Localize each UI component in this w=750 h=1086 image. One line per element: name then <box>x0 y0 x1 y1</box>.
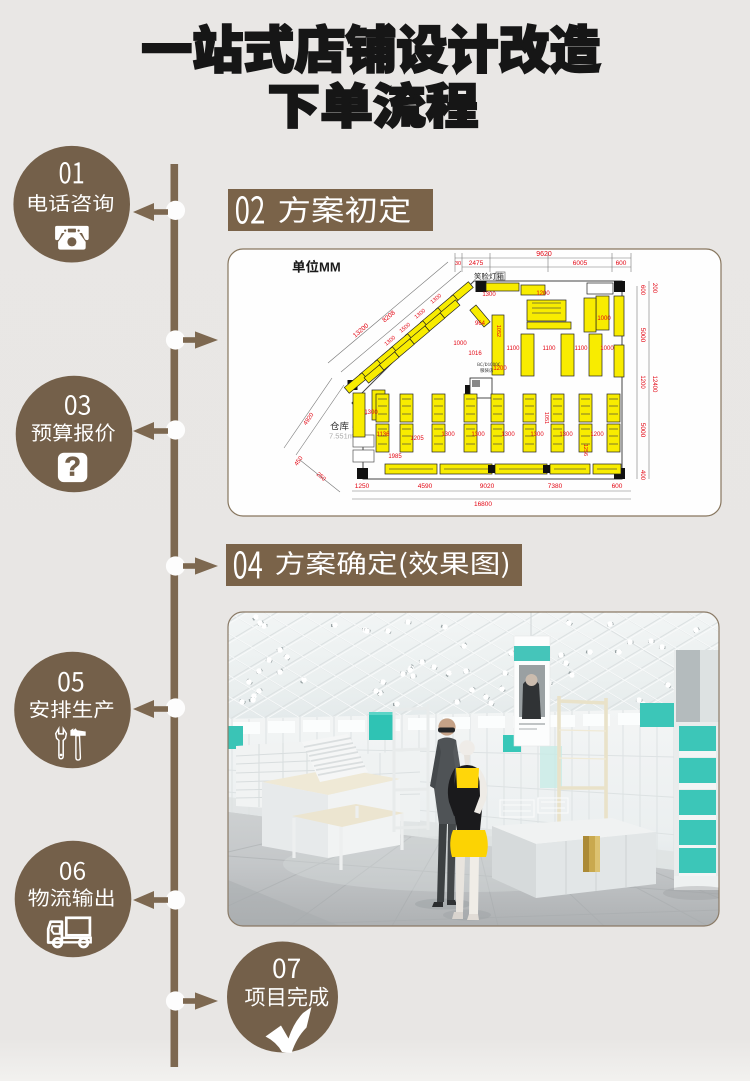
svg-text:1136: 1136 <box>377 432 391 438</box>
svg-text:200: 200 <box>651 283 657 294</box>
svg-text:5000: 5000 <box>639 423 646 438</box>
svg-text:1100: 1100 <box>543 346 557 352</box>
svg-text:7380: 7380 <box>548 483 563 490</box>
svg-text:1200: 1200 <box>590 432 604 438</box>
svg-text:1016: 1016 <box>468 351 482 357</box>
svg-text:1051: 1051 <box>543 412 549 424</box>
svg-text:1300: 1300 <box>559 432 573 438</box>
svg-text:400: 400 <box>639 470 645 481</box>
svg-text:6005: 6005 <box>573 260 588 267</box>
svg-text:1100: 1100 <box>575 346 589 352</box>
svg-text:4590: 4590 <box>418 483 433 490</box>
svg-text:1300: 1300 <box>482 292 496 298</box>
svg-text:1300: 1300 <box>441 432 455 438</box>
svg-text:1256: 1256 <box>582 444 588 456</box>
svg-text:1200: 1200 <box>493 366 507 372</box>
svg-text:9620: 9620 <box>536 251 552 258</box>
svg-text:1300: 1300 <box>501 432 515 438</box>
svg-text:1250: 1250 <box>355 483 370 490</box>
svg-text:600: 600 <box>639 285 645 296</box>
svg-text:1052: 1052 <box>495 325 501 337</box>
svg-text:1100: 1100 <box>507 346 521 352</box>
svg-text:30: 30 <box>455 261 461 267</box>
svg-text:1000: 1000 <box>453 341 467 347</box>
svg-text:600: 600 <box>616 260 627 267</box>
svg-text:600: 600 <box>612 483 623 490</box>
svg-text:1200: 1200 <box>639 375 645 389</box>
svg-text:1000: 1000 <box>597 316 611 322</box>
svg-text:9020: 9020 <box>480 483 495 490</box>
svg-text:?: ? <box>64 451 81 481</box>
svg-text:1300: 1300 <box>530 432 544 438</box>
svg-text:16800: 16800 <box>474 501 492 508</box>
svg-text:1200: 1200 <box>536 291 550 297</box>
svg-text:5000: 5000 <box>639 328 646 343</box>
svg-text:1000: 1000 <box>600 346 614 352</box>
svg-text:1205: 1205 <box>410 436 424 442</box>
svg-text:12400: 12400 <box>651 376 657 393</box>
svg-text:964: 964 <box>475 321 486 327</box>
svg-text:1300: 1300 <box>471 432 485 438</box>
svg-text:MM: MM <box>319 260 341 275</box>
svg-text:1985: 1985 <box>388 454 402 460</box>
svg-text:2475: 2475 <box>469 260 484 267</box>
svg-text:1300: 1300 <box>364 410 378 416</box>
